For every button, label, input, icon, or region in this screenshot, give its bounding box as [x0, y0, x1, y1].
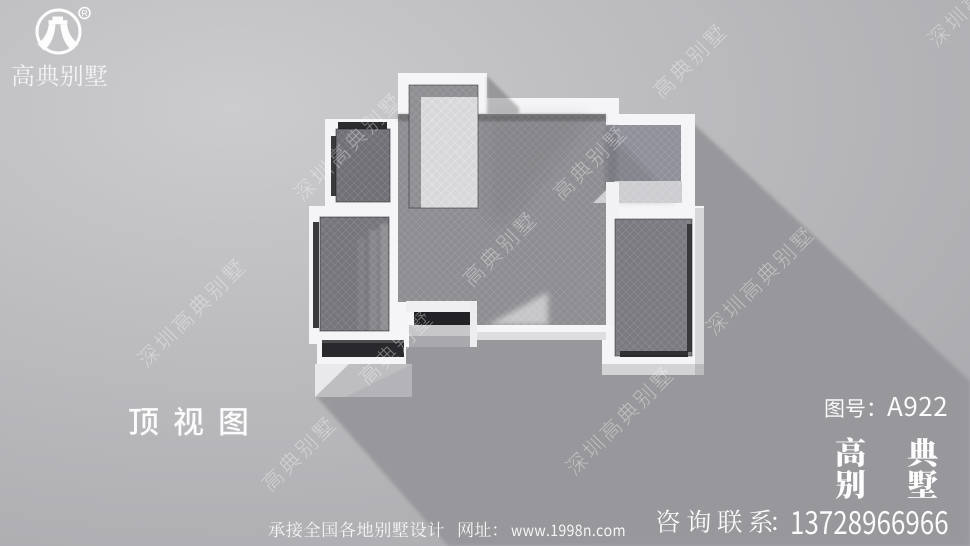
svg-text:R: R	[81, 8, 87, 18]
